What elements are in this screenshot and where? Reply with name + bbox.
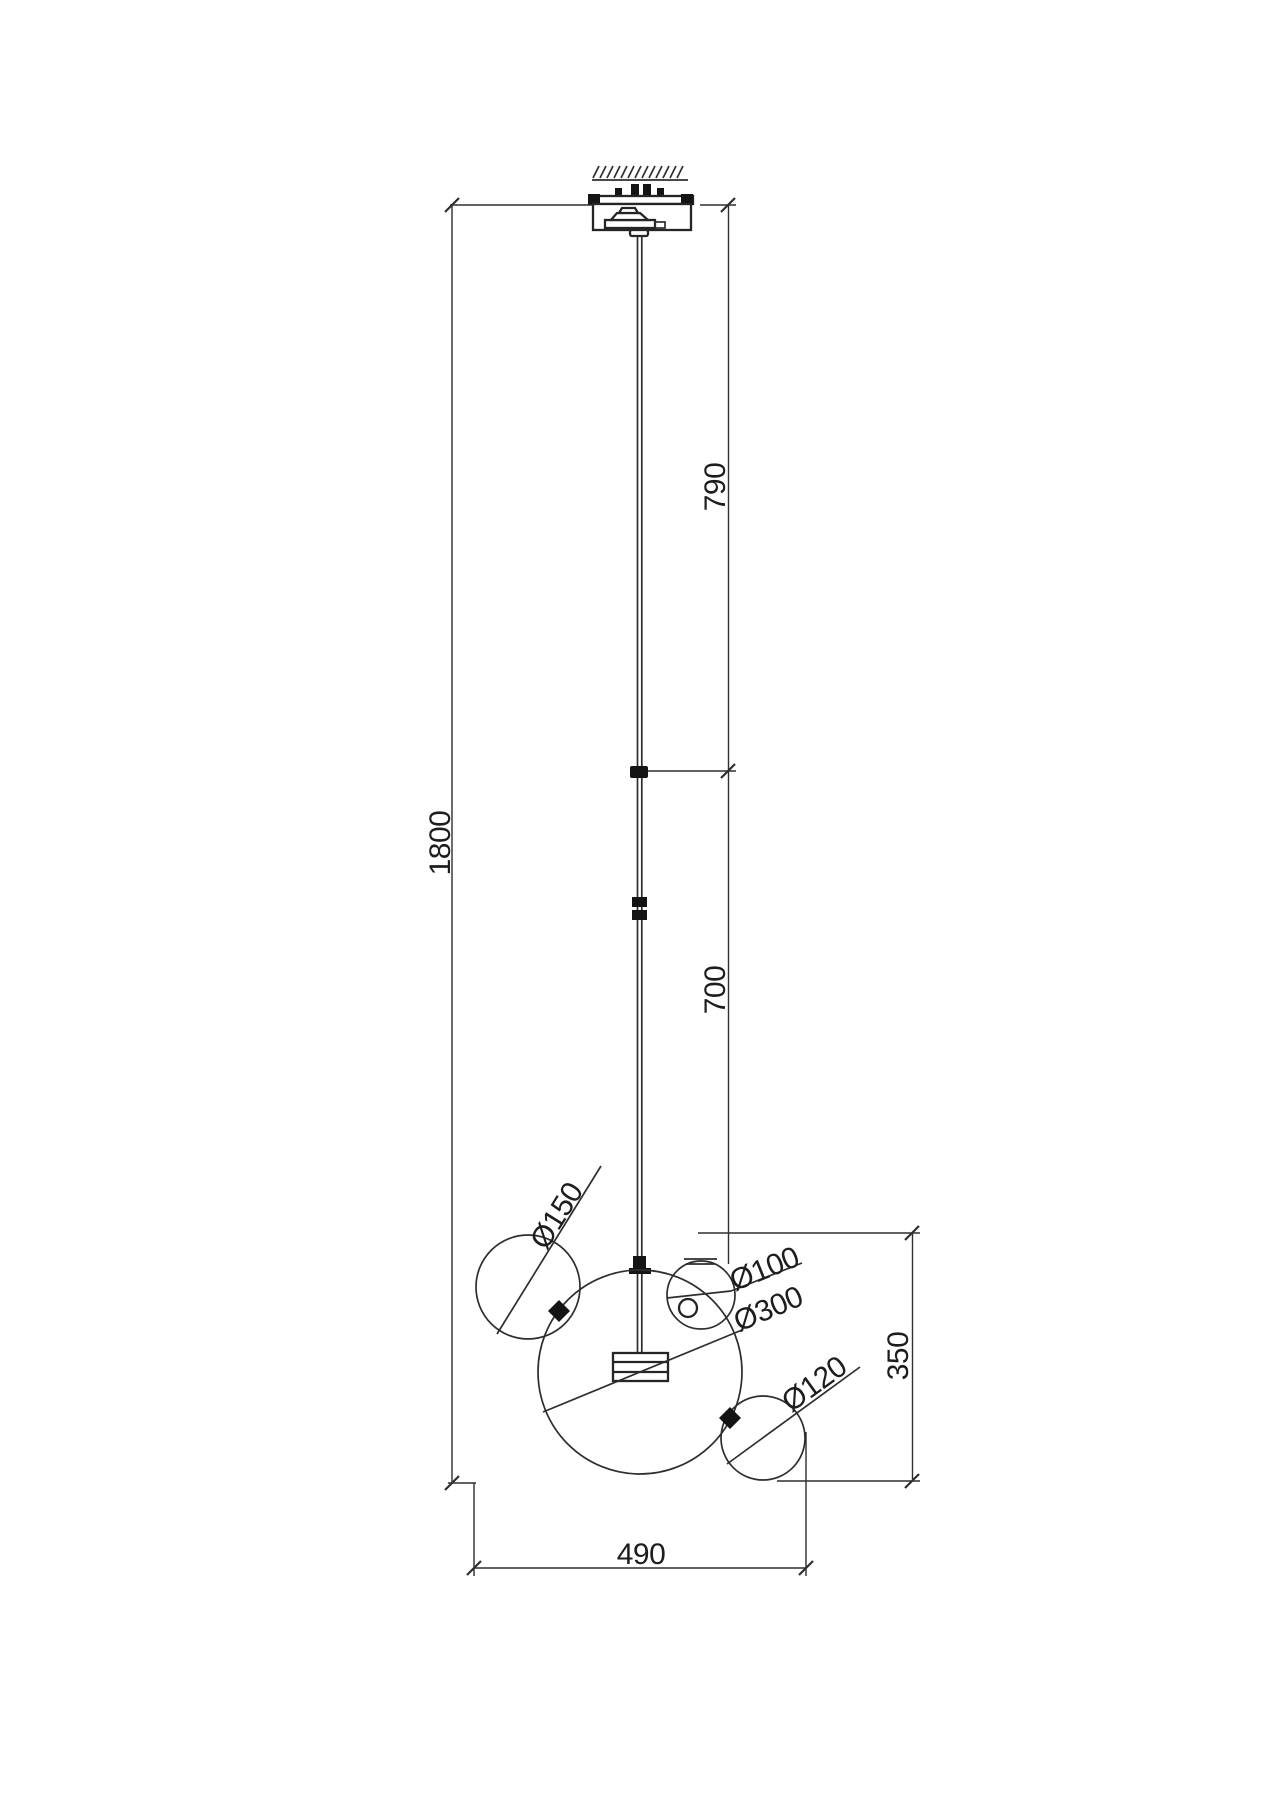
callout-dia-120: Ø120 — [727, 1350, 860, 1464]
mounting-plate — [590, 196, 693, 204]
rod-coupling-band-2 — [632, 910, 647, 920]
rod-connector — [633, 1256, 646, 1268]
dim-1800-label: 1800 — [424, 811, 457, 876]
pendant-lamp-drawing: Ø150 Ø300 Ø100 Ø120 1800 790 700 — [0, 0, 1273, 1800]
rod-coupling-band-1 — [632, 897, 647, 907]
dim-700-label: 700 — [699, 966, 732, 1015]
dimension-total-height: 1800 — [424, 198, 592, 1490]
dimension-upper-rod: 790 — [699, 198, 736, 771]
dimension-cluster-width: 490 — [467, 1432, 813, 1576]
dim-490-label: 490 — [617, 1538, 666, 1571]
ceiling-hatch — [592, 166, 688, 180]
lamp-hub — [613, 1353, 668, 1381]
drawing-page: Ø150 Ø300 Ø100 Ø120 1800 790 700 — [0, 0, 1273, 1800]
canopy — [588, 184, 693, 236]
callout-dia-300: Ø300 — [543, 1280, 808, 1412]
dimension-lower-rod: 700 — [648, 764, 736, 1264]
dia-150-label: Ø150 — [524, 1177, 590, 1255]
dia-120-label: Ø120 — [776, 1350, 853, 1419]
dim-350-label: 350 — [882, 1332, 915, 1381]
callout-dia-150: Ø150 — [497, 1166, 601, 1334]
suspension-rod — [629, 236, 651, 1354]
canopy-neck — [630, 230, 648, 236]
sphere-100-highlight — [679, 1299, 697, 1317]
canopy-base-bar — [605, 220, 655, 228]
sphere-150 — [476, 1235, 580, 1339]
rod-joint-upper — [630, 766, 648, 778]
dim-790-label: 790 — [699, 463, 732, 512]
canopy-dome-top — [619, 208, 638, 213]
connector-diamond-left — [548, 1300, 570, 1322]
